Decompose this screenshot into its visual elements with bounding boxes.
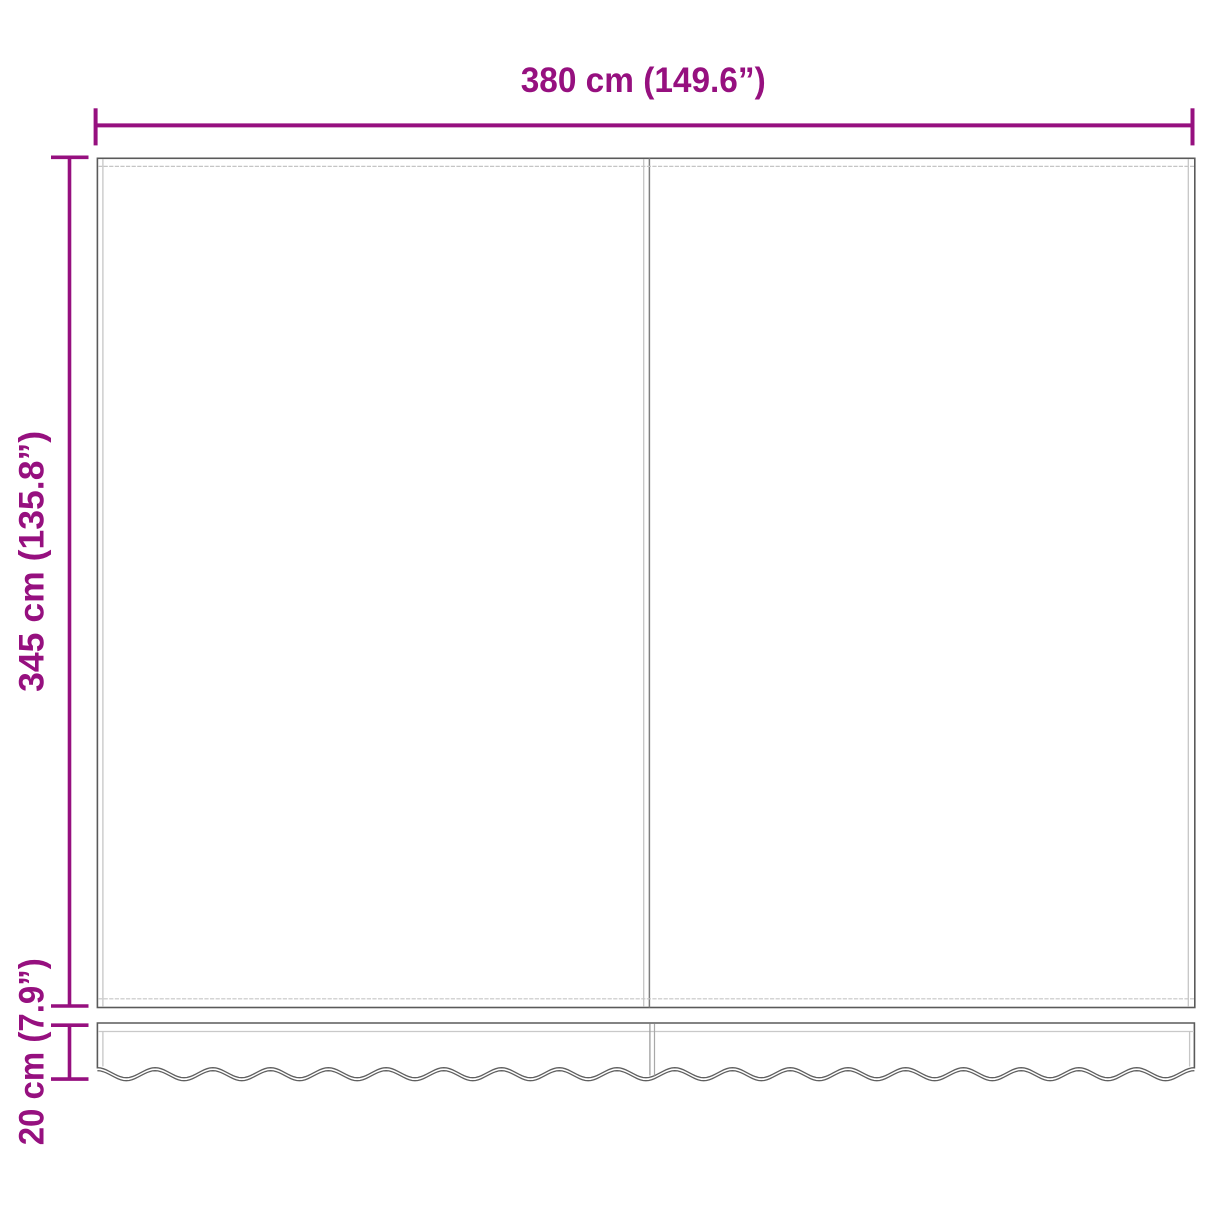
svg-text:20 cm (7.9”): 20 cm (7.9”) bbox=[12, 958, 51, 1145]
svg-text:345 cm (135.8”): 345 cm (135.8”) bbox=[12, 431, 51, 692]
svg-text:380 cm (149.6”): 380 cm (149.6”) bbox=[521, 61, 766, 100]
